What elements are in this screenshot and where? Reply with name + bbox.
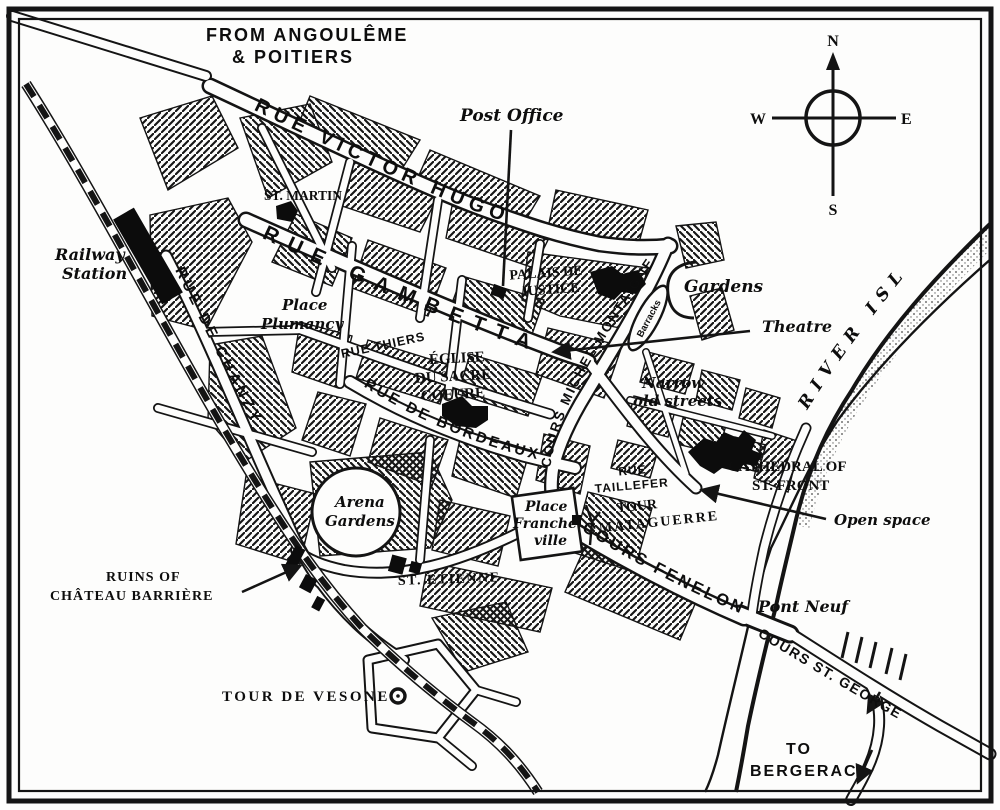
place-plumancy-label-line1: Place [281,296,327,314]
gardens-label: Gardens [684,277,764,297]
cathedral-label-line1: CATHEDRAL OF [728,459,846,475]
arena-label-line1: Arena [333,493,385,511]
francheville-label-line2: Franche [512,516,577,532]
compass-s-label: S [829,202,838,219]
route-from-label-line1: FROM ANGOULÊME [206,24,408,45]
post-office-label: Post Office [459,106,564,126]
railway-station-label-line1: Railway [54,245,126,264]
compass-n-label: N [827,33,839,50]
francheville-label-line3: ville [534,533,567,549]
cathedral-label-line2: ST. FRONT [752,478,829,494]
map-page: FROM ANGOULÊME & POITIERS Post Office RU… [0,0,1000,810]
tour-de-vesone-label: TOUR DE VESONE [222,689,390,705]
town-plan-map: FROM ANGOULÊME & POITIERS Post Office RU… [0,0,1000,810]
to-bergerac-label-line1: TO [786,741,812,758]
francheville-label-line1: Place [524,499,567,515]
place-plumancy-label-line2: Plumancy [260,315,345,333]
ruins-label-line2: CHÂTEAU BARRIÈRE [50,587,213,604]
railway-station-label-line2: Station [62,264,127,283]
narrow-streets-label-line1: Narrow [641,374,705,392]
theatre-label: Theatre [762,317,832,336]
st-martin-label: ST. MARTIN [264,188,342,203]
open-space-label: Open space [834,511,931,529]
arena-label-line2: Gardens [325,512,395,530]
ruins-label-line1: RUINS OF [106,570,181,585]
taillefer-label-line1: RUE [618,462,647,478]
route-from-label-line2: & POITIERS [232,47,354,67]
pont-neuf-label: Pont Neuf [757,597,851,616]
eglise-label-line1: ÉGLISE [429,348,486,368]
compass-w-label: W [750,111,766,128]
compass-e-label: E [901,111,912,128]
narrow-streets-label-line2: old streets [633,392,723,410]
eglise-label-line3: COEURE [420,385,485,404]
tour-vesone-dot [396,694,400,698]
to-bergerac-label-line2: BERGERAC [750,763,858,780]
